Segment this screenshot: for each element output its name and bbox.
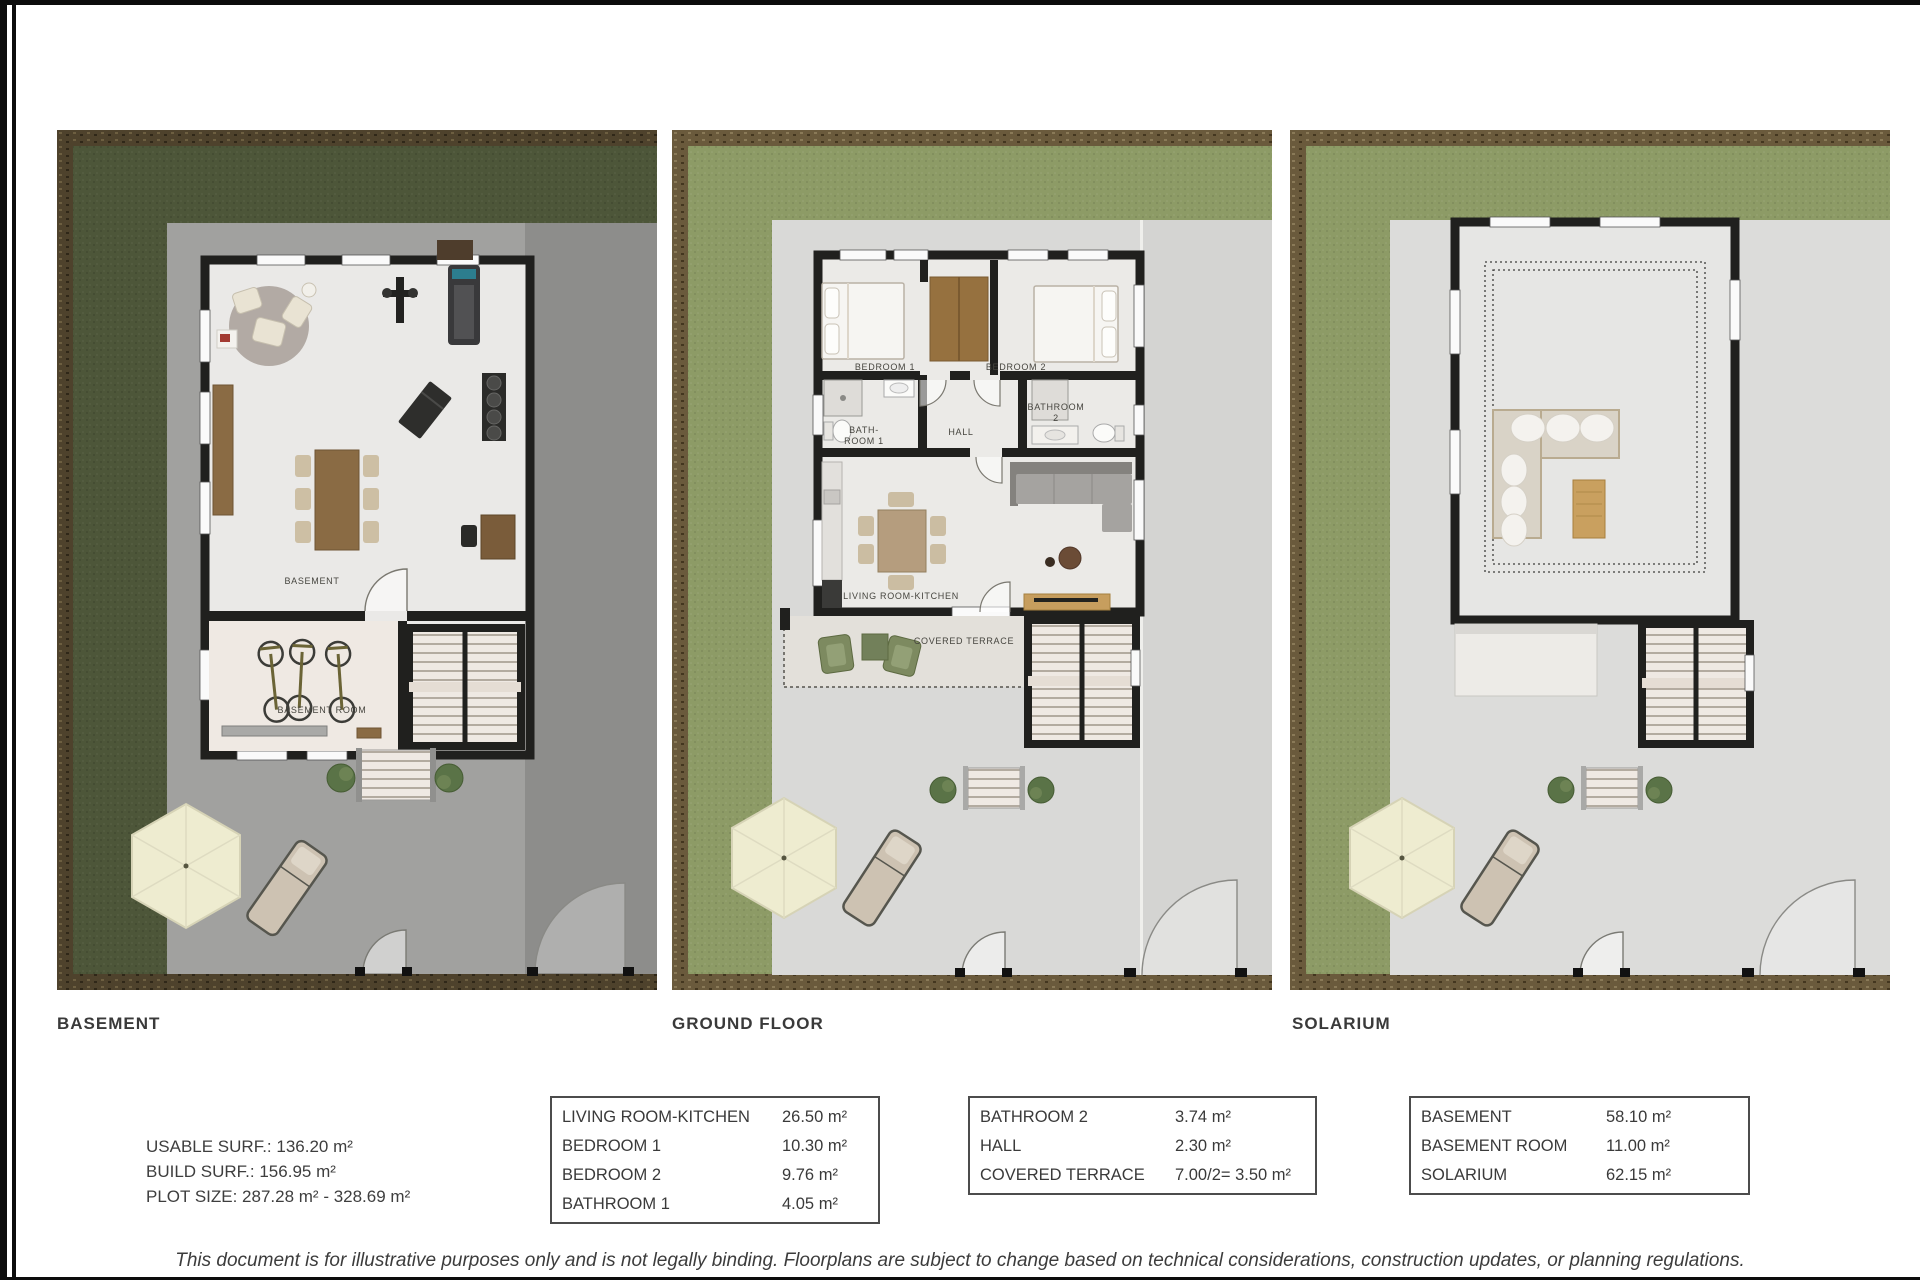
bathroom1-label: BATH-ROOM 1 xyxy=(829,425,899,447)
table-row: BEDROOM 110.30 m² xyxy=(552,1132,878,1161)
covered-terrace-label: COVERED TERRACE xyxy=(894,636,1034,647)
table-row: HALL2.30 m² xyxy=(970,1132,1315,1161)
lower-roof-area xyxy=(1455,624,1597,696)
basement-room-label: BASEMENT xyxy=(247,576,377,587)
frame-top xyxy=(0,0,1920,5)
frame-left-outer xyxy=(0,0,7,1280)
basement-solarium-areas-table: BASEMENT58.10 m² BASEMENT ROOM11.00 m² S… xyxy=(1409,1096,1750,1195)
legal-disclaimer: This document is for illustrative purpos… xyxy=(0,1250,1920,1272)
bedroom1-bed xyxy=(822,283,904,359)
kitchen-counter xyxy=(822,462,842,608)
table-row: COVERED TERRACE7.00/2= 3.50 m² xyxy=(970,1161,1315,1190)
build-surface: BUILD SURF.: 156.95 m² xyxy=(146,1159,410,1184)
exterior-stairs xyxy=(963,766,1025,810)
table-row: BATHROOM 14.05 m² xyxy=(552,1190,878,1219)
usable-surface: USABLE SURF.: 136.20 m² xyxy=(146,1134,410,1159)
surface-summary: USABLE SURF.: 136.20 m² BUILD SURF.: 156… xyxy=(146,1134,410,1209)
secondary-areas-table: BATHROOM 23.74 m² HALL2.30 m² COVERED TE… xyxy=(968,1096,1317,1195)
ground-floor-title: GROUND FLOOR xyxy=(672,1014,824,1034)
solarium-stairs xyxy=(1642,624,1754,744)
basement-storage-label: BASEMENT ROOM xyxy=(247,705,397,716)
side-table xyxy=(1573,480,1605,538)
basement-plan-panel: BASEMENT BASEMENT ROOM xyxy=(57,130,657,990)
plot-size: PLOT SIZE: 287.28 m² - 328.69 m² xyxy=(146,1184,410,1209)
exterior-stairs xyxy=(1581,766,1643,810)
table-row: BASEMENT ROOM11.00 m² xyxy=(1411,1132,1748,1161)
ground-floor-areas-table: LIVING ROOM-KITCHEN26.50 m² BEDROOM 110.… xyxy=(550,1096,880,1224)
solarium-plan-panel xyxy=(1290,130,1890,990)
solarium-floorplan xyxy=(1290,130,1890,990)
table-row: BEDROOM 29.76 m² xyxy=(552,1161,878,1190)
covered-terrace xyxy=(780,608,1028,687)
table-row: BASEMENT58.10 m² xyxy=(1411,1103,1748,1132)
ground-floor-floorplan xyxy=(672,130,1272,990)
floorplan-document: BASEMENT BASEMENT ROOM xyxy=(0,0,1920,1280)
exterior-stairs xyxy=(356,748,436,802)
bathroom2-label: BATHROOM2 xyxy=(1016,402,1096,424)
living-room-label: LIVING ROOM-KITCHEN xyxy=(821,591,981,602)
bedroom1-label: BEDROOM 1 xyxy=(825,362,945,373)
ground-stairs xyxy=(1028,620,1140,744)
solarium-title: SOLARIUM xyxy=(1292,1014,1391,1034)
bedroom2-label: BEDROOM 2 xyxy=(956,362,1076,373)
hall-label: HALL xyxy=(931,427,991,438)
ground-floor-plan-panel: BEDROOM 1 BEDROOM 2 BATH-ROOM 1 HALL BAT… xyxy=(672,130,1272,990)
basement-stairs xyxy=(409,628,521,746)
frame-left-inner xyxy=(12,0,16,1280)
bedroom2-bed xyxy=(1034,286,1118,362)
table-row: LIVING ROOM-KITCHEN26.50 m² xyxy=(552,1103,878,1132)
basement-title: BASEMENT xyxy=(57,1014,160,1034)
table-row: BATHROOM 23.74 m² xyxy=(970,1103,1315,1132)
table-row: SOLARIUM62.15 m² xyxy=(1411,1161,1748,1190)
basement-floorplan xyxy=(57,130,657,990)
